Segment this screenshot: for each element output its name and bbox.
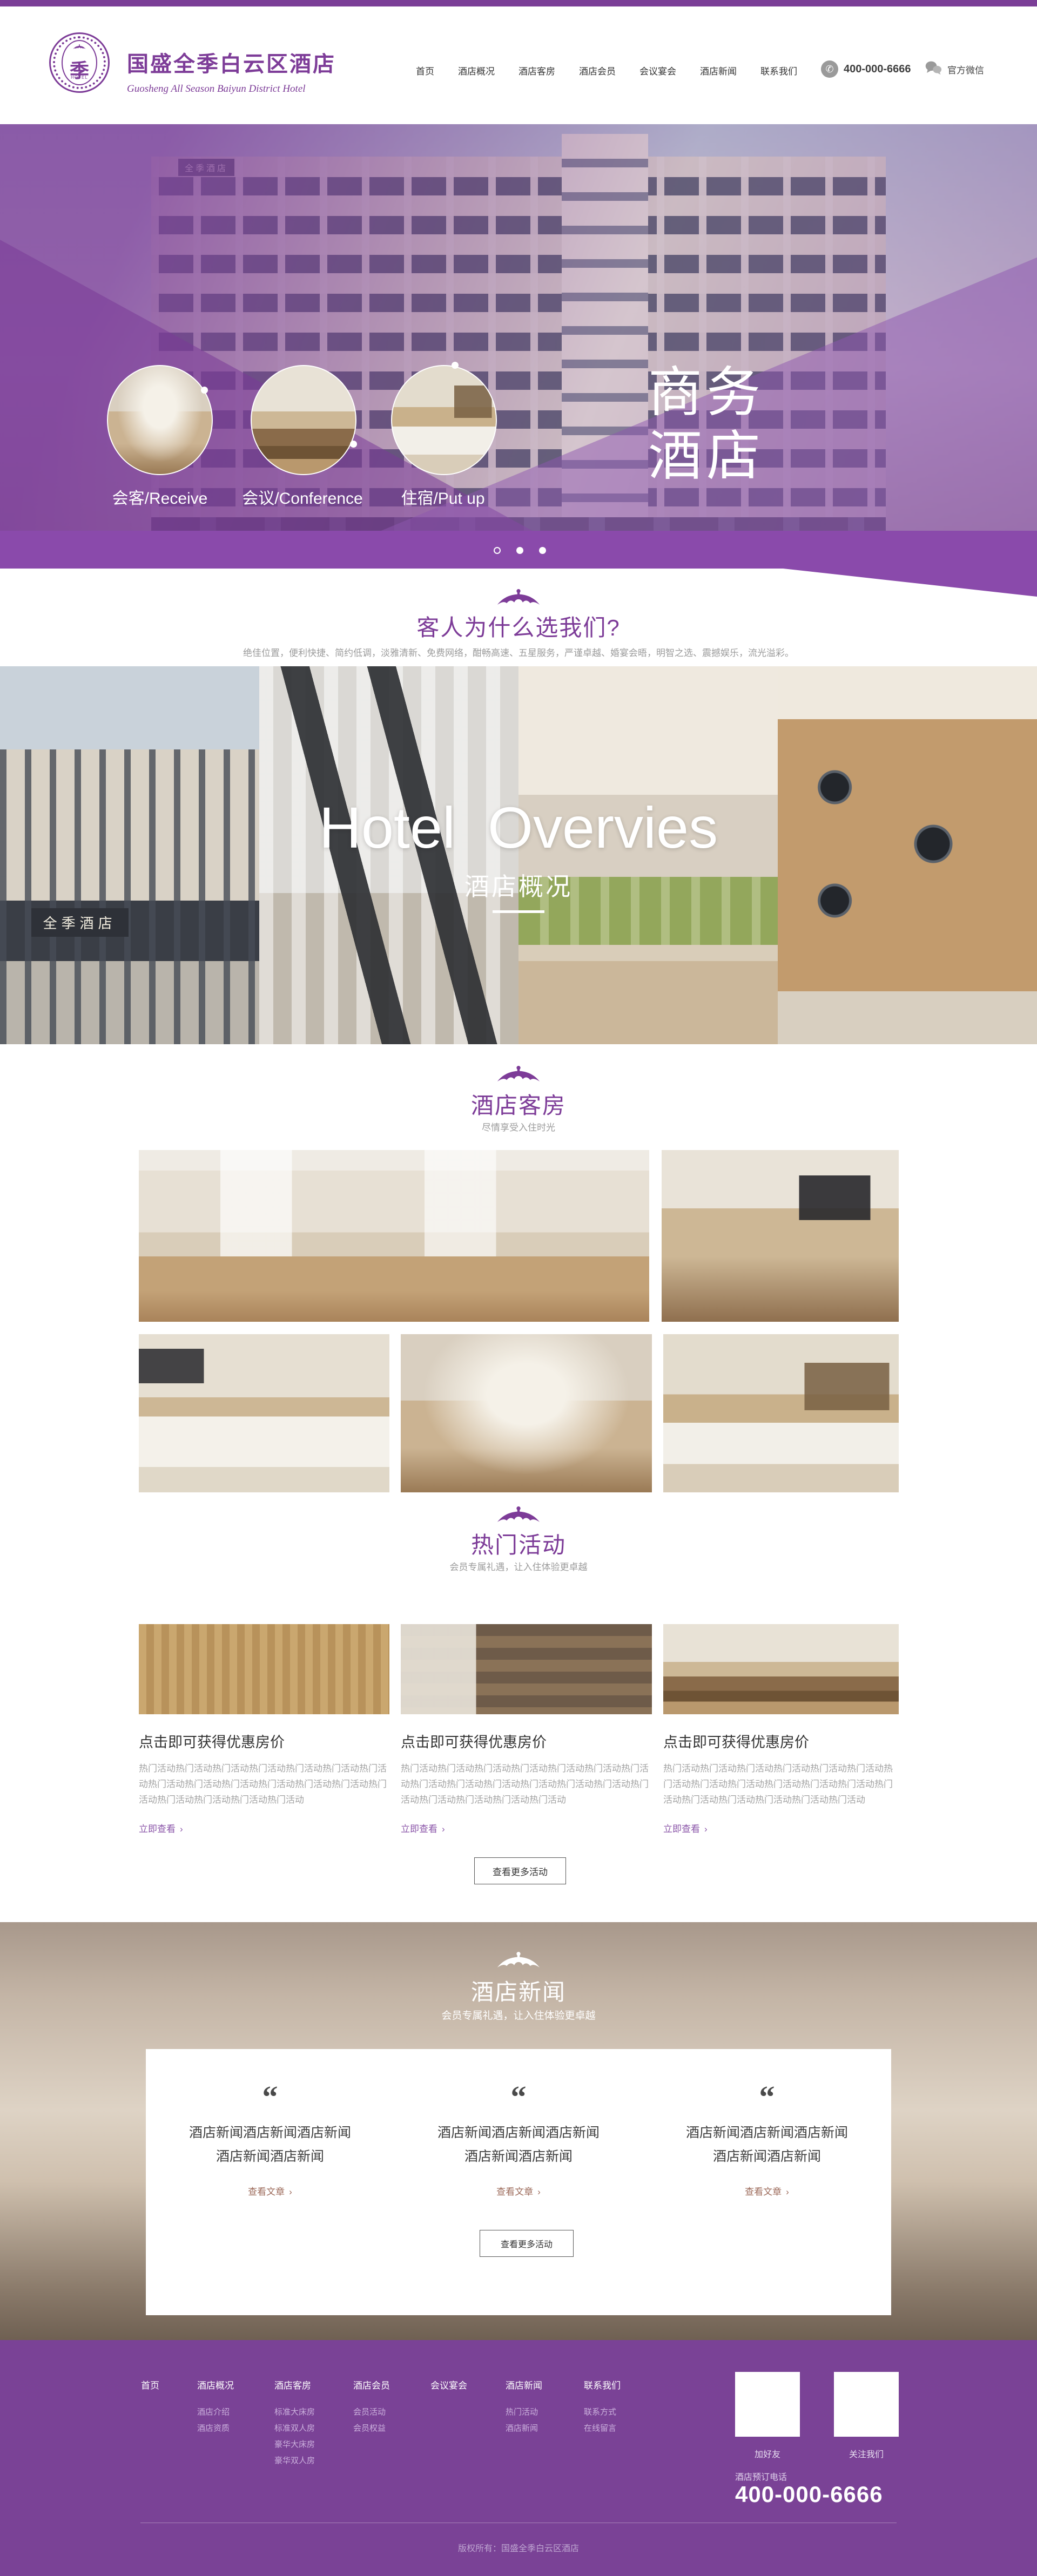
circle-dot-1: [201, 387, 208, 394]
activity-view-link[interactable]: 立即查看›: [663, 1821, 708, 1835]
logo-inner-ring: 季 HOTEL: [62, 40, 97, 85]
wechat-icon: [925, 60, 942, 78]
quote-icon: “: [157, 2081, 383, 2113]
phone-icon: ✆: [821, 60, 838, 78]
footer-link[interactable]: 联系我们: [584, 2378, 621, 2391]
news-item[interactable]: “ 酒店新闻酒店新闻酒店新闻酒店新闻酒店新闻 查看文章›: [157, 2049, 383, 2198]
site-header: 季 HOTEL 国盛全季白云区酒店 Guosheng All Season Ba…: [0, 6, 1037, 124]
quote-icon: “: [405, 2081, 632, 2113]
room-photo-lounge[interactable]: [401, 1334, 652, 1492]
logo-hotel-label: HOTEL: [63, 75, 96, 80]
ornament-icon: [495, 1952, 542, 1969]
feature-label-conference: 会议/Conference: [232, 485, 373, 509]
footer-sublink[interactable]: 豪华双人房: [274, 2453, 315, 2469]
footer-col-membership: 酒店会员 会员活动 会员权益: [353, 2378, 390, 2437]
news-read-link[interactable]: 查看文章›: [745, 2184, 789, 2198]
circle-dot-2: [350, 441, 357, 448]
nav-news[interactable]: 酒店新闻: [700, 64, 737, 77]
activity-view-link-label: 立即查看: [401, 1824, 437, 1834]
footer-link[interactable]: 酒店新闻: [506, 2378, 542, 2391]
footer-link[interactable]: 酒店会员: [353, 2378, 390, 2391]
room-photo-bedroom-1[interactable]: [662, 1150, 899, 1322]
hero-headline: 商务 酒店: [648, 361, 765, 488]
activity-card-title: 点击即可获得优惠房价: [139, 1730, 389, 1752]
nav-contact[interactable]: 联系我们: [760, 64, 797, 77]
footer-link[interactable]: 酒店概况: [197, 2378, 234, 2391]
ornament-icon: [495, 1066, 542, 1083]
footer-sublink[interactable]: 标准双人房: [274, 2421, 315, 2437]
hero-feature-circle-conference[interactable]: [251, 365, 356, 475]
footer-link[interactable]: 酒店客房: [274, 2378, 315, 2391]
circle-dot-3: [452, 362, 459, 369]
news-card: “ 酒店新闻酒店新闻酒店新闻酒店新闻酒店新闻 查看文章› “ 酒店新闻酒店新闻酒…: [146, 2049, 891, 2315]
hotline-number: 400-000-6666: [735, 2482, 883, 2507]
room-photo-bedroom-3[interactable]: [663, 1334, 899, 1492]
news-read-link[interactable]: 查看文章›: [496, 2184, 541, 2198]
footer-sublink[interactable]: 会员权益: [353, 2421, 390, 2437]
rooms-title: 酒店客房: [0, 1087, 1037, 1120]
more-activities-button[interactable]: 查看更多活动: [474, 1857, 566, 1884]
footer-col-contact: 联系我们 联系方式 在线留言: [584, 2378, 621, 2437]
footer-col-overview: 酒店概况 酒店介绍 酒店资质: [197, 2378, 234, 2437]
footer-sublink[interactable]: 酒店资质: [197, 2421, 234, 2437]
ornament-icon: [495, 589, 542, 606]
activity-card-desc: 热门活动热门活动热门活动热门活动热门活动热门活动热门活动热门活动热门活动热门活动…: [663, 1761, 899, 1808]
storefront-sign: 全季酒店: [31, 908, 129, 937]
news-subtitle: 会员专属礼遇，让入住体验更卓越: [0, 2007, 1037, 2022]
activity-photo-lobby: [139, 1624, 389, 1714]
activity-photo-meeting: [663, 1624, 899, 1714]
footer-sublink[interactable]: 豪华大床房: [274, 2437, 315, 2453]
header-phone[interactable]: ✆ 400-000-6666: [821, 60, 911, 78]
activity-card-desc: 热门活动热门活动热门活动热门活动热门活动热门活动热门活动热门活动热门活动热门活动…: [139, 1761, 389, 1808]
activity-view-link[interactable]: 立即查看›: [401, 1821, 445, 1835]
news-item-text: 酒店新闻酒店新闻酒店新闻酒店新闻酒店新闻: [683, 2121, 851, 2169]
carousel-dot-3[interactable]: [539, 547, 546, 554]
activity-card-title: 点击即可获得优惠房价: [663, 1730, 899, 1752]
news-item-text: 酒店新闻酒店新闻酒店新闻酒店新闻酒店新闻: [434, 2121, 603, 2169]
why-us-subtitle: 绝佳位置，便利快捷、简约低调，淡雅清新、免费网络，酣畅高速、五星服务，严谨卓越、…: [0, 645, 1037, 659]
overview-headline: Hotel Overvies: [0, 794, 1037, 861]
rooms-subtitle: 尽情享受入住时光: [0, 1120, 1037, 1133]
copyright-text: 版权所有：国盛全季白云区酒店: [0, 2541, 1037, 2554]
footer-col-news: 酒店新闻 热门活动 酒店新闻: [506, 2378, 542, 2437]
activity-card[interactable]: 点击即可获得优惠房价 热门活动热门活动热门活动热门活动热门活动热门活动热门活动热…: [663, 1624, 899, 1835]
qr-code-friend: [735, 2372, 800, 2437]
canopy-icon: [72, 44, 86, 50]
hero-headline-line2: 酒店: [648, 424, 765, 488]
activity-view-link-label: 立即查看: [139, 1824, 176, 1834]
activity-view-link[interactable]: 立即查看›: [139, 1821, 183, 1835]
news-item[interactable]: “ 酒店新闻酒店新闻酒店新闻酒店新闻酒店新闻 查看文章›: [405, 2049, 632, 2198]
news-item[interactable]: “ 酒店新闻酒店新闻酒店新闻酒店新闻酒店新闻 查看文章›: [654, 2049, 880, 2198]
top-accent-bar: [0, 0, 1037, 6]
nav-banquet[interactable]: 会议宴会: [639, 64, 676, 77]
header-phone-number: 400-000-6666: [844, 63, 911, 76]
footer-sublink[interactable]: 酒店介绍: [197, 2404, 234, 2421]
chevron-right-icon: ›: [289, 2187, 292, 2197]
qr-label-friend: 加好友: [735, 2447, 800, 2460]
footer-sublink[interactable]: 热门活动: [506, 2404, 542, 2421]
footer-col-home: 首页: [141, 2378, 159, 2404]
activity-card[interactable]: 点击即可获得优惠房价 热门活动热门活动热门活动热门活动热门活动热门活动热门活动热…: [401, 1624, 652, 1835]
nav-rooms[interactable]: 酒店客房: [518, 64, 555, 77]
activities-subtitle: 会员专属礼遇，让入住体验更卓越: [0, 1559, 1037, 1573]
footer-sublink[interactable]: 在线留言: [584, 2421, 621, 2437]
header-wechat-label: 官方微信: [947, 63, 984, 76]
qr-code-follow: [834, 2372, 899, 2437]
footer-col-banquet: 会议宴会: [430, 2378, 467, 2404]
site-footer: 首页 酒店概况 酒店介绍 酒店资质 酒店客房 标准大床房 标准双人房 豪华大床房…: [0, 2340, 1037, 2576]
nav-overview[interactable]: 酒店概况: [458, 64, 495, 77]
news-section: 酒店新闻 会员专属礼遇，让入住体验更卓越 “ 酒店新闻酒店新闻酒店新闻酒店新闻酒…: [0, 1922, 1037, 2340]
footer-sublink[interactable]: 酒店新闻: [506, 2421, 542, 2437]
activity-card-desc: 热门活动热门活动热门活动热门活动热门活动热门活动热门活动热门活动热门活动热门活动…: [401, 1761, 652, 1808]
nav-home[interactable]: 首页: [416, 64, 434, 77]
chevron-right-icon: ›: [704, 1824, 708, 1834]
why-us-title: 客人为什么选我们?: [0, 610, 1037, 643]
hero-feature-circle-receive[interactable]: [107, 365, 213, 475]
header-wechat[interactable]: 官方微信: [925, 60, 984, 78]
activity-card-title: 点击即可获得优惠房价: [401, 1730, 652, 1752]
room-photo-bedroom-2[interactable]: [139, 1334, 389, 1492]
overview-dash: [493, 910, 544, 913]
news-read-link-label: 查看文章: [496, 2187, 533, 2197]
carousel-dot-1[interactable]: [494, 547, 501, 554]
feature-label-putup: 住宿/Put up: [373, 485, 513, 509]
footer-link[interactable]: 会议宴会: [430, 2378, 467, 2391]
hotel-logo[interactable]: 季 HOTEL: [49, 32, 110, 93]
more-news-button[interactable]: 查看更多活动: [480, 2230, 574, 2257]
activity-card[interactable]: 点击即可获得优惠房价 热门活动热门活动热门活动热门活动热门活动热门活动热门活动热…: [139, 1624, 389, 1835]
room-photo-living[interactable]: [139, 1150, 649, 1322]
quote-icon: “: [654, 2081, 880, 2113]
hotline-label: 酒店预订电话: [735, 2470, 787, 2483]
footer-sublink[interactable]: 会员活动: [353, 2404, 390, 2421]
activities-section: 热门活动 会员专属礼遇，让入住体验更卓越 点击即可获得优惠房价 热门活动热门活动…: [0, 1506, 1037, 1922]
news-item-text: 酒店新闻酒店新闻酒店新闻酒店新闻酒店新闻: [186, 2121, 354, 2169]
footer-sublink[interactable]: 标准大床房: [274, 2404, 315, 2421]
carousel-dot-2[interactable]: [516, 547, 523, 554]
chevron-right-icon: ›: [537, 2187, 541, 2197]
site-subtitle: Guosheng All Season Baiyun District Hote…: [127, 83, 336, 95]
chevron-right-icon: ›: [786, 2187, 789, 2197]
footer-col-rooms: 酒店客房 标准大床房 标准双人房 豪华大床房 豪华双人房: [274, 2378, 315, 2469]
chevron-right-icon: ›: [442, 1824, 445, 1834]
footer-sublink[interactable]: 联系方式: [584, 2404, 621, 2421]
ornament-icon: [495, 1506, 542, 1524]
news-title: 酒店新闻: [0, 1974, 1037, 2007]
qr-label-follow: 关注我们: [834, 2447, 899, 2460]
rooms-section: 酒店客房 尽情享受入住时光: [0, 1044, 1037, 1506]
chevron-right-icon: ›: [180, 1824, 183, 1834]
site-title: 国盛全季白云区酒店: [127, 46, 336, 78]
news-read-link[interactable]: 查看文章›: [248, 2184, 292, 2198]
hero-feature-circle-putup[interactable]: [391, 365, 497, 475]
activity-view-link-label: 立即查看: [663, 1824, 700, 1834]
overview-subtitle: 酒店概况: [0, 867, 1037, 903]
main-nav: 首页 酒店概况 酒店客房 酒店会员 会议宴会 酒店新闻 联系我们: [416, 64, 797, 77]
hero-headline-line1: 商务: [648, 361, 765, 424]
footer-link[interactable]: 首页: [141, 2378, 159, 2391]
footer-divider: [140, 2523, 897, 2523]
hero-banner: 全季酒店 会客/Receive 会议/Conference 住宿/Put up …: [0, 124, 1037, 569]
carousel-dots: [494, 547, 546, 554]
activities-title: 热门活动: [0, 1527, 1037, 1560]
why-us-section: 客人为什么选我们? 绝佳位置，便利快捷、简约低调，淡雅清新、免费网络，酣畅高速、…: [0, 569, 1037, 666]
news-read-link-label: 查看文章: [745, 2187, 782, 2197]
news-read-link-label: 查看文章: [248, 2187, 285, 2197]
hotel-overview-strip: 全季酒店 Hotel Overvies 酒店概况: [0, 666, 1037, 1044]
nav-membership[interactable]: 酒店会员: [579, 64, 616, 77]
feature-label-receive: 会客/Receive: [90, 485, 230, 509]
activity-photo-shop: [401, 1624, 652, 1714]
